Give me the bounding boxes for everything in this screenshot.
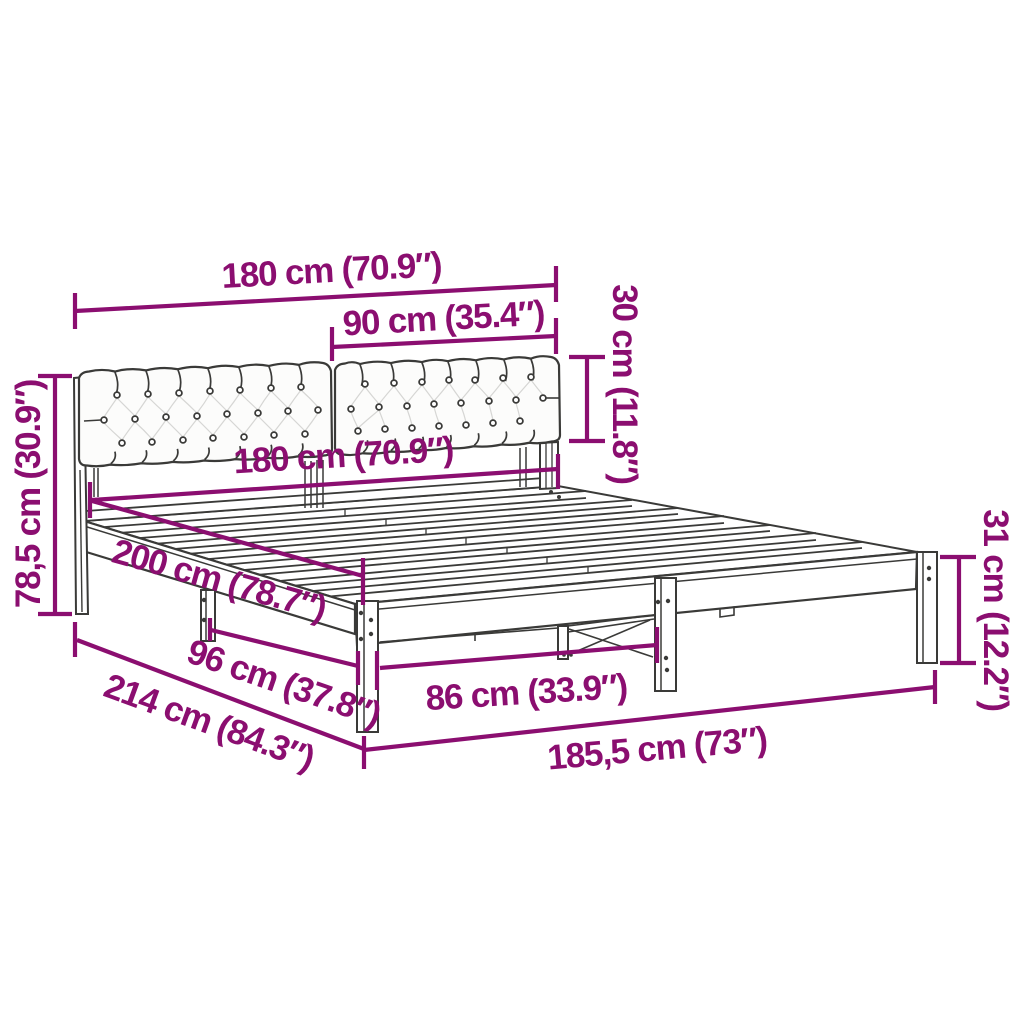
svg-text:78,5 cm (30.9″): 78,5 cm (30.9″) <box>9 380 48 608</box>
svg-text:30 cm (11.8″): 30 cm (11.8″) <box>605 284 644 484</box>
svg-text:31 cm (12.2″): 31 cm (12.2″) <box>976 509 1015 711</box>
